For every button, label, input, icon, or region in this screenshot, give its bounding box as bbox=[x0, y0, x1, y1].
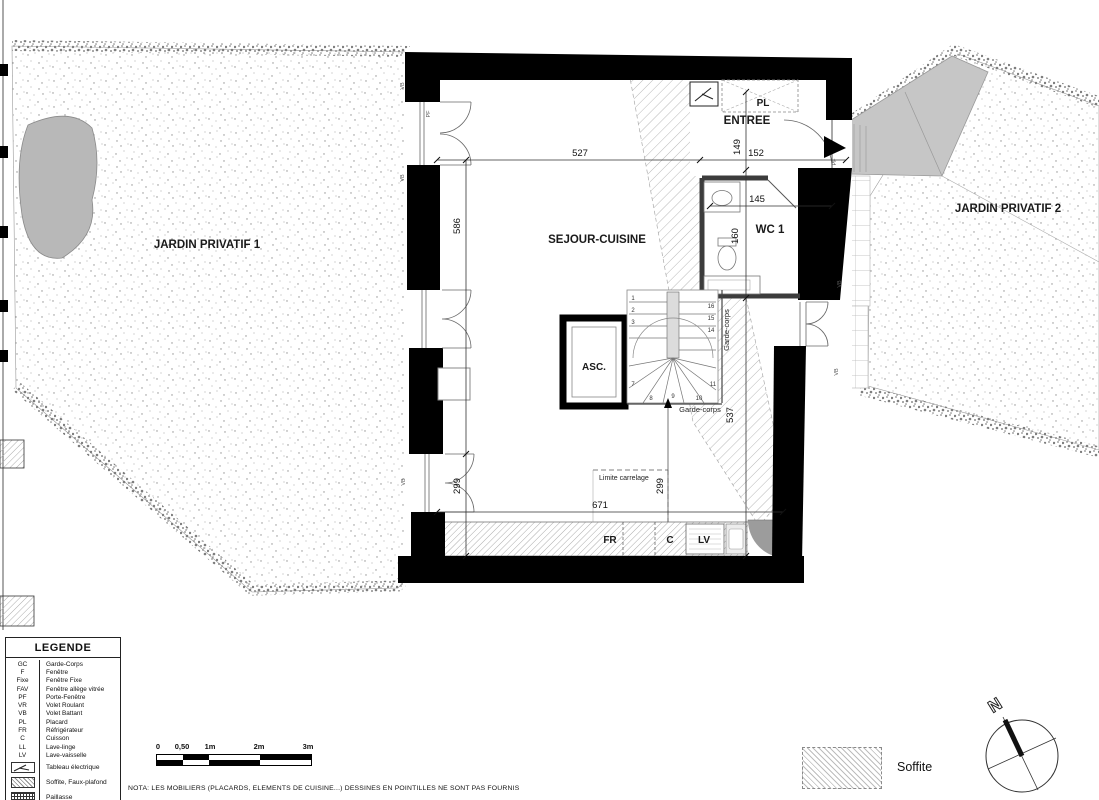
jardin2-label: JARDIN PRIVATIF 2 bbox=[955, 203, 1061, 215]
svg-text:PF: PF bbox=[426, 110, 432, 118]
svg-text:VB: VB bbox=[400, 82, 406, 90]
svg-text:14: 14 bbox=[708, 328, 715, 334]
legend-row: VBVolet Battant bbox=[6, 710, 120, 718]
legend-title: LEGENDE bbox=[6, 638, 120, 658]
dim-537: 537 bbox=[725, 407, 736, 423]
tableau-electrique-icon bbox=[11, 762, 35, 773]
garde-corps-vertical-label: Garde-corps bbox=[722, 309, 731, 351]
legend-box: LEGENDE GCGarde-Corps FFenêtre FixeFenêt… bbox=[5, 637, 121, 800]
garde-corps-horizontal-label: Garde-corps bbox=[679, 405, 721, 414]
svg-text:VB: VB bbox=[400, 174, 406, 182]
dim-671: 671 bbox=[592, 500, 608, 511]
dim-299-left: 299 bbox=[452, 478, 463, 494]
svg-text:VB: VB bbox=[837, 280, 843, 288]
jardin-1-area bbox=[12, 40, 418, 592]
north-label: N bbox=[985, 694, 1005, 717]
north-needle-icon bbox=[1005, 720, 1022, 756]
scale-tick-label: 1m bbox=[205, 742, 216, 751]
asc-label: ASC. bbox=[582, 362, 606, 373]
scale-tick-label: 2m bbox=[254, 742, 265, 751]
soffite-hatch-icon bbox=[11, 777, 35, 788]
scale-bar-strip bbox=[156, 754, 312, 766]
dim-527: 527 bbox=[572, 148, 588, 159]
soffite-key-label: Soffite bbox=[897, 760, 932, 774]
wall-pilaster bbox=[438, 368, 470, 400]
legend-icon-row: Tableau électrique bbox=[6, 760, 120, 775]
dim-152: 152 bbox=[748, 148, 764, 159]
legend-row: FRRéfrigérateur bbox=[6, 726, 120, 734]
legend-row: LVLave-vaisselle bbox=[6, 751, 120, 759]
rock-icon bbox=[19, 116, 97, 258]
dim-160: 160 bbox=[730, 228, 741, 244]
dim-586: 586 bbox=[452, 218, 463, 234]
svg-text:16: 16 bbox=[708, 304, 715, 310]
dishwasher-label: LV bbox=[698, 535, 710, 546]
legend-row: PLPlacard bbox=[6, 718, 120, 726]
dim-145: 145 bbox=[749, 194, 765, 205]
floor-plan-page: JARDIN PRIVATIF 1 JARDIN PRIVATIF 2 SEJO… bbox=[0, 0, 1099, 800]
floor-plan-svg: JARDIN PRIVATIF 1 JARDIN PRIVATIF 2 SEJO… bbox=[0, 0, 1099, 800]
soffite-key-swatch bbox=[802, 747, 882, 789]
scale-tick-label: 0,50 bbox=[175, 742, 190, 751]
legend-row: PFPorte-Fenêtre bbox=[6, 693, 120, 701]
legend-icon-row: Paillasse bbox=[6, 790, 120, 800]
legend-row: GCGarde-Corps bbox=[6, 660, 120, 668]
legend-row: FFenêtre bbox=[6, 668, 120, 676]
legend-row: LLLave-linge bbox=[6, 743, 120, 751]
nota-text: NOTA: LES MOBILIERS (PLACARDS, ELEMENTS … bbox=[128, 785, 519, 792]
fridge-label: FR bbox=[603, 535, 617, 546]
cooktop-label: C bbox=[666, 535, 673, 546]
svg-text:10: 10 bbox=[696, 396, 703, 402]
limite-carrelage-label: Limite carrelage bbox=[599, 475, 649, 482]
svg-text:VB: VB bbox=[401, 478, 407, 486]
svg-text:PF: PF bbox=[832, 158, 838, 166]
legend-row: FixeFenêtre Fixe bbox=[6, 677, 120, 685]
legend-row: CCuisson bbox=[6, 735, 120, 743]
sejour-label: SEJOUR-CUISINE bbox=[548, 234, 646, 246]
legend-row: FAVFenêtre allège vitrée bbox=[6, 685, 120, 693]
jardin1-label: JARDIN PRIVATIF 1 bbox=[154, 239, 261, 251]
svg-text:15: 15 bbox=[708, 316, 715, 322]
svg-text:11: 11 bbox=[710, 382, 717, 388]
legend-body: GCGarde-Corps FFenêtre FixeFenêtre Fixe … bbox=[6, 658, 120, 800]
dim-149: 149 bbox=[732, 139, 743, 155]
scale-bar: 0 0,50 1m 2m 3m bbox=[156, 742, 316, 772]
toilet bbox=[718, 246, 736, 270]
compass: N bbox=[972, 686, 1084, 800]
wc-label: WC 1 bbox=[756, 224, 785, 236]
dim-299-right: 299 bbox=[655, 478, 666, 494]
svg-text:VB: VB bbox=[834, 368, 840, 376]
legend-icon-row: Soffite, Faux-plafond bbox=[6, 775, 120, 790]
scale-tick-label: 0 bbox=[156, 742, 160, 751]
paillasse-hatch-icon bbox=[11, 792, 35, 800]
entree-label: ENTREE bbox=[724, 115, 771, 127]
scale-tick-label: 3m bbox=[303, 742, 314, 751]
washbasin bbox=[712, 191, 732, 206]
legend-row: VRVolet Roulant bbox=[6, 701, 120, 709]
pl-label: PL bbox=[757, 98, 770, 109]
